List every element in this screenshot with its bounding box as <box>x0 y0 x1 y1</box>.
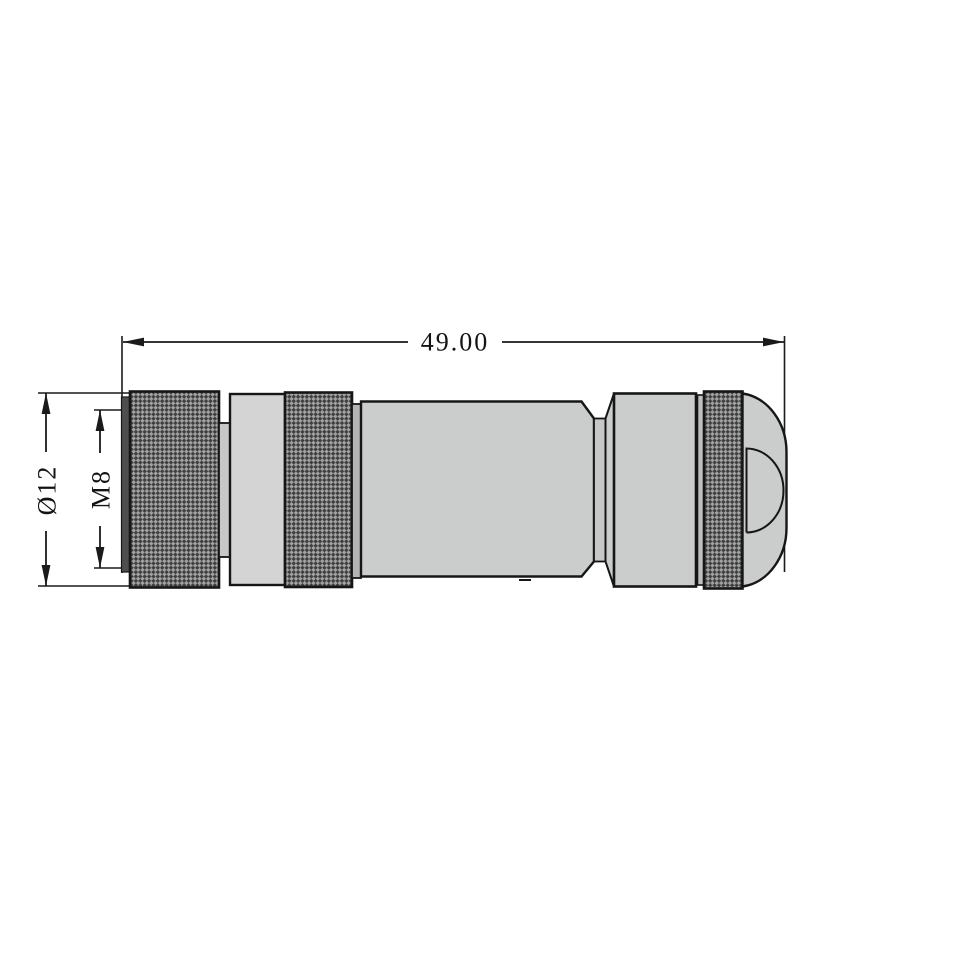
drawing-page: 49.00 Ø12 M8 <box>0 0 960 960</box>
rear-nut <box>614 394 696 587</box>
arrowhead-length-left <box>123 338 144 347</box>
mid-knurl-ring <box>285 393 352 588</box>
arrowhead-diameter-bottom <box>42 565 51 586</box>
dimension-label-length: 49.00 <box>421 328 490 357</box>
connector-body <box>122 392 787 589</box>
groove-neck-rear <box>594 419 606 562</box>
dimension-label-thread: M8 <box>87 469 116 509</box>
groove-neck-front <box>219 423 230 557</box>
main-barrel <box>361 402 594 577</box>
step-ring <box>352 404 361 578</box>
dimension-thread: M8 <box>87 410 116 568</box>
arrowhead-length-right <box>763 338 784 347</box>
dimension-label-diameter: Ø12 <box>33 465 62 516</box>
smooth-collar <box>230 394 285 585</box>
arrowhead-thread-bottom <box>96 547 105 568</box>
strain-relief-knurl <box>704 392 743 589</box>
technical-drawing-canvas: 49.00 Ø12 M8 <box>0 0 960 960</box>
arrowhead-thread-top <box>96 410 105 431</box>
dimension-diameter: Ø12 <box>33 393 62 586</box>
coupling-nut-knurl <box>130 392 219 588</box>
dimension-length: 49.00 <box>123 328 784 357</box>
arrowhead-diameter-top <box>42 393 51 414</box>
cable-end-dome <box>743 394 787 587</box>
